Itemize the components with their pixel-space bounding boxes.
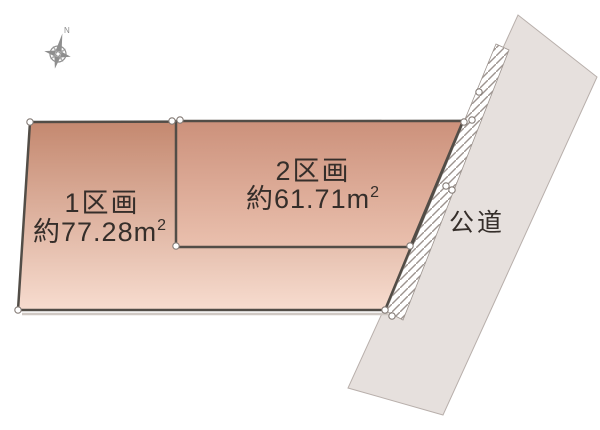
parcel-1-name: 1区画 (64, 188, 139, 218)
survey-marker (476, 89, 482, 95)
land-plot-diagram: 公道 1区画 約77.28m2 2区画 約61.71m2 (0, 0, 600, 430)
survey-marker (15, 307, 21, 313)
survey-marker (449, 187, 455, 193)
survey-marker (389, 313, 395, 319)
survey-marker (443, 183, 449, 189)
survey-marker (407, 243, 413, 249)
parcel-1-area-sup: 2 (157, 217, 167, 234)
survey-marker (382, 307, 388, 313)
road-label: 公道 (449, 209, 505, 237)
compass-rose-icon: N (41, 26, 76, 72)
survey-marker (173, 243, 179, 249)
compass-north-label: N (64, 26, 70, 35)
parcel-2-area-label: 約61.71m2 (246, 184, 380, 214)
parcel-1-area-label: 約77.28m2 (33, 217, 167, 247)
survey-marker (461, 119, 467, 125)
parcel-2-area-value: 約61.71m (246, 184, 370, 214)
parcel-2-area-sup: 2 (370, 184, 380, 201)
compass-south-point (52, 56, 60, 69)
survey-marker (177, 117, 183, 123)
survey-marker (27, 119, 33, 125)
parcel-1-area-value: 約77.28m (33, 217, 157, 247)
survey-marker (169, 118, 175, 124)
parcel-2-name: 2区画 (275, 156, 350, 186)
survey-marker (469, 117, 475, 123)
compass-center-dot (55, 51, 60, 56)
plot-map-canvas: 公道 1区画 約77.28m2 2区画 約61.71m2 (0, 0, 600, 430)
